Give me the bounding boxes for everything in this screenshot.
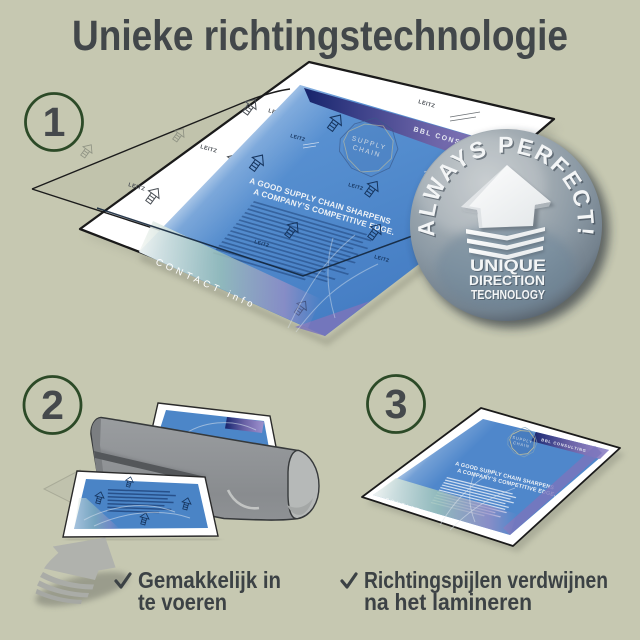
svg-text:te voeren: te voeren [138,589,227,615]
svg-text:3: 3 [385,381,408,427]
svg-text:2: 2 [41,382,64,428]
svg-text:1: 1 [43,99,66,145]
svg-text:TECHNOLOGY: TECHNOLOGY [471,288,546,302]
svg-text:DIRECTION: DIRECTION [469,272,545,288]
svg-text:Unieke richtingstechnologie: Unieke richtingstechnologie [72,12,568,60]
svg-text:na het lamineren: na het lamineren [364,589,532,615]
